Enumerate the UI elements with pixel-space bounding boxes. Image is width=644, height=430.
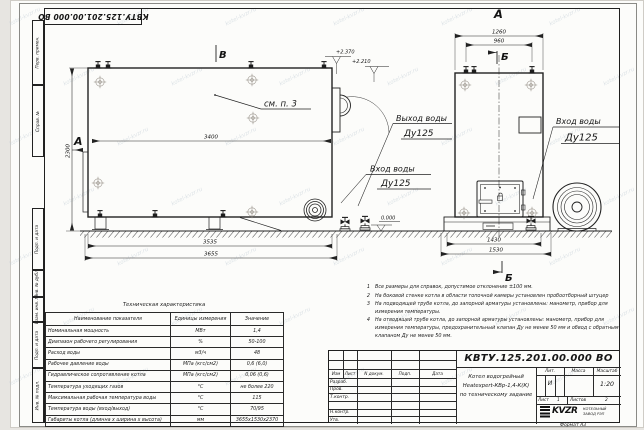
- section-mark-b-bottom: Б: [505, 273, 513, 284]
- valve-icon: [463, 67, 470, 73]
- valve-icon: [220, 211, 227, 217]
- level-2210: +2.210: [352, 59, 371, 65]
- dim-3400: 3400: [204, 135, 218, 141]
- target-mark-icon: [92, 177, 104, 189]
- spec-table: Наименование показателя Единицы измерени…: [45, 312, 284, 427]
- section-mark-b-top: Б: [501, 52, 509, 63]
- kvzr-logo-caption: КОТЕЛЬНЫЙ ЗАВОД РЭП: [583, 407, 606, 416]
- callout-inlet-mid-dn: Ду125: [380, 179, 411, 189]
- dim-3535: 3535: [203, 240, 217, 246]
- drawing-page: kotel-kvzr.rukotel-kvzr.rukotel-kvzr.ruk…: [0, 0, 644, 430]
- dim-960: 960: [494, 39, 505, 45]
- callout-outlet-title: Выход воды: [396, 114, 447, 123]
- spec-col-units: Единицы измерения: [171, 313, 231, 326]
- spec-row: Рабочее давление водыМПа (кгс/см2)0,6 (6…: [46, 359, 284, 370]
- valve-icon: [95, 62, 102, 68]
- valve-icon: [529, 67, 536, 73]
- furnace-door-icon: [477, 181, 525, 217]
- note-item: 2На боковой стенке котла в области топоч…: [362, 293, 620, 301]
- view-mark-a-front: А: [73, 135, 83, 148]
- boiler-body-front: [88, 68, 332, 217]
- tb-mass-label: Масса: [564, 369, 593, 374]
- callout-inlet-mid-title: Вход воды: [370, 165, 415, 174]
- lock-icon: [498, 196, 503, 201]
- tb-sheet-label: Лист: [538, 398, 549, 403]
- level-2370: +2.370: [336, 50, 355, 56]
- kvzr-logo-text: KVZR: [552, 406, 577, 416]
- tb-col-sign: Подп.: [391, 371, 419, 376]
- note-item: 1Все размеры для справок, допустимое отк…: [362, 284, 620, 292]
- sight-glass: [519, 117, 541, 133]
- format-label: Формат А3: [560, 423, 586, 428]
- valve-icon: [321, 62, 328, 68]
- tb-sheets-value: 2: [605, 398, 608, 403]
- tb-name-line2: Heatexpert-КВр-1,4-К(К): [457, 383, 535, 389]
- ground-hatch: [80, 232, 612, 238]
- tb-lit-value: И: [545, 380, 555, 387]
- kvzr-logo-icon: [540, 406, 550, 418]
- note-item: 4На отводящей трубе котла, до запорной а…: [362, 317, 620, 340]
- target-mark-icon: [94, 76, 106, 88]
- level-zero: 0.000: [381, 216, 395, 222]
- target-mark-icon: [247, 112, 259, 124]
- valve-icon: [105, 62, 112, 68]
- tb-row-tkontr: Т.контр.: [330, 395, 349, 400]
- valve-icon: [97, 211, 104, 217]
- section-mark-v: В: [219, 50, 227, 61]
- target-mark-icon: [459, 79, 471, 91]
- tb-col-list: Лист: [343, 371, 357, 376]
- tb-col-izm: Изм: [329, 371, 343, 376]
- spec-row: Расход водым3/ч48: [46, 348, 284, 359]
- tb-scale-value: 1:20: [593, 381, 621, 388]
- spec-row: Максимальная рабочая температура воды°С1…: [46, 393, 284, 404]
- dim-3655: 3655: [204, 252, 218, 258]
- spec-col-value: Значение: [231, 313, 284, 326]
- tb-scale-label: Масштаб: [593, 369, 621, 374]
- base-frame: [444, 217, 550, 231]
- tb-col-doc: N докум.: [357, 371, 391, 376]
- spec-col-name: Наименование показателя: [46, 313, 171, 326]
- tb-row-razrab: Разраб.: [330, 380, 347, 385]
- spec-row: Номинальная мощностьМВт1,4: [46, 326, 284, 337]
- spec-row: Температура воды (вход/выход)°С70/95: [46, 404, 284, 415]
- callout-inlet-right-title: Вход воды: [556, 117, 601, 126]
- tb-name-line1: Котел водогрейный: [457, 374, 535, 380]
- notes-list: 1Все размеры для справок, допустимое отк…: [362, 284, 620, 341]
- valve-icon: [248, 62, 255, 68]
- callout-inlet-right-dn: Ду125: [564, 133, 598, 144]
- tb-row-utv: Утв.: [330, 418, 339, 423]
- tb-col-date: Дата: [419, 371, 456, 376]
- see-note-label: см. п. 3: [264, 100, 297, 110]
- tb-row-prov: Пров.: [330, 387, 343, 392]
- callout-outlet-dn: Ду125: [403, 129, 434, 139]
- target-mark-icon: [246, 74, 258, 86]
- spec-row: Температура уходящих газов°Сне более 220: [46, 381, 284, 392]
- valve-icon: [526, 216, 536, 230]
- target-mark-icon: [525, 79, 537, 91]
- side-view-dimensions: 1260 960 Б 1430 1530 Б: [441, 30, 551, 285]
- dim-1430: 1430: [487, 238, 501, 244]
- dim-2300: 2300: [66, 144, 72, 158]
- view-label-a: А: [493, 7, 503, 21]
- spec-table-title: Техническая характеристика: [45, 302, 283, 308]
- pipe-callouts: Выход воды Ду125 Вход воды Ду125 Вход во…: [341, 114, 619, 206]
- valve-icon: [360, 216, 370, 230]
- valve-icon: [471, 67, 478, 73]
- blower-fan-icon: [553, 183, 601, 231]
- note-item: 3На подводящей трубе котла, до запорной …: [362, 301, 620, 316]
- tb-name-line3: по техническому задание: [457, 392, 535, 398]
- spec-row: Габариты котла (длинна х ширина х высота…: [46, 415, 284, 426]
- door-handle-icon: [479, 200, 492, 203]
- wall-channel: [83, 152, 88, 212]
- dim-1530: 1530: [489, 248, 503, 254]
- tb-doc-number: КВТУ.125.201.00.000 ВО: [456, 353, 621, 364]
- tb-sheets-label: Листов: [570, 398, 586, 403]
- dim-1260: 1260: [492, 30, 506, 36]
- valve-icon: [340, 217, 350, 231]
- valve-icon: [152, 211, 159, 217]
- flue-outlet: [332, 88, 389, 133]
- tb-row-nkontr: Н.контр.: [330, 410, 350, 415]
- spec-row: Диапазон рабочего регулирования%50-100: [46, 337, 284, 348]
- tb-sheet-value: 1: [557, 398, 560, 403]
- tb-lit-label: Лит.: [536, 369, 564, 374]
- spec-row: Гидравлическое сопротивление котлаМПа (к…: [46, 370, 284, 381]
